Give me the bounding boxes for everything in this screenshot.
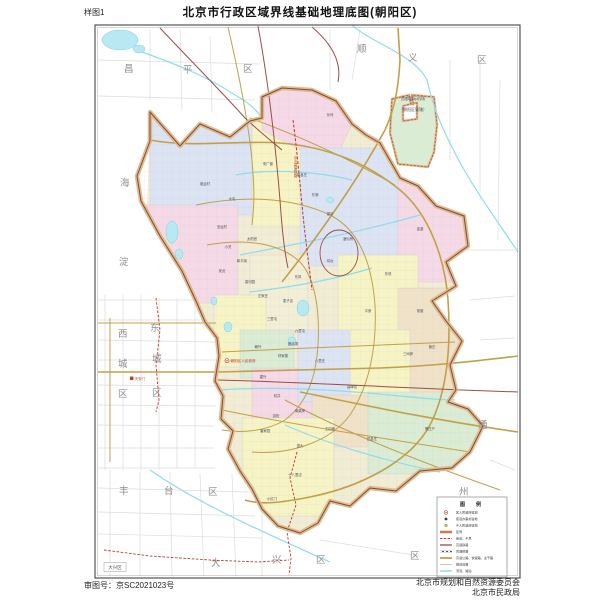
neighbor-district-label: 平 bbox=[183, 65, 193, 76]
subdistrict-label: 黑庄户 bbox=[425, 426, 435, 431]
subdistrict-label: 六里屯 bbox=[295, 328, 306, 333]
map-canvas: 昌平区顺义区海淀西城区东城区丰台区大兴区通州区 奥运村大屯亚运村小关安贞和平街来… bbox=[0, 0, 600, 600]
enclave-label-line2: （朝阳区管辖） bbox=[399, 106, 427, 112]
subdistrict-label: 香河园 bbox=[245, 279, 256, 284]
neighbor-district-label: 大 bbox=[211, 557, 221, 569]
credits: 北京市规划和自然资源委员会 北京市民政局 bbox=[416, 578, 520, 597]
neighbor-district-label: 州 bbox=[459, 487, 469, 498]
subdistrict-label: 管庄 bbox=[429, 344, 436, 349]
page: 样图1 北京市行政区域界线基础地理底图(朝阳区) bbox=[0, 0, 600, 600]
legend: 图 例 区人民政府驻地街道办事处驻地乡人民政府驻地区界街道、乡界高速铁路普通铁路… bbox=[437, 497, 507, 577]
subdistrict-label: 和平街 bbox=[237, 258, 248, 263]
legend-label: 普通铁路 bbox=[456, 549, 468, 554]
legend-label: 高速铁路 bbox=[456, 542, 468, 547]
subdistrict-label: 朝外 bbox=[255, 344, 262, 349]
neighbor-district-label: 顺 bbox=[357, 44, 367, 55]
neighbor-district-label: 台 bbox=[164, 485, 174, 497]
rail-line-label: 京沈高速铁路 bbox=[293, 155, 298, 178]
subdistrict-label: 建外 bbox=[260, 374, 267, 379]
legend-label: 规划道路 bbox=[456, 562, 468, 567]
credit-line-2: 北京市民政局 bbox=[416, 588, 520, 598]
subdistrict-label: 崔各庄 bbox=[297, 172, 308, 177]
legend-symbol-subdistrict-seat bbox=[445, 518, 448, 521]
neighbor-district-label: 城 bbox=[118, 359, 128, 370]
legend-label: 高速公路、快速路、主干路 bbox=[456, 555, 493, 560]
subdistrict-label: 潘家园 bbox=[260, 428, 271, 433]
legend-label: 河流、湖泊 bbox=[456, 568, 471, 573]
neighbor-district-label: 区 bbox=[477, 55, 487, 66]
legend-row: 区界 bbox=[440, 530, 462, 534]
subdistrict-label: 呼家楼 bbox=[278, 353, 289, 358]
neighbor-district-label: 东 bbox=[150, 322, 160, 334]
subdistrict-label: 团结湖 bbox=[288, 341, 299, 346]
subdistrict-label: 王四营 bbox=[325, 426, 336, 431]
neighbor-district-label: 义 bbox=[408, 53, 418, 64]
subdistrict-label: 安贞 bbox=[219, 268, 226, 273]
neighbor-district-label: 兴 bbox=[272, 555, 282, 566]
subdistrict-label: 双井 bbox=[274, 393, 281, 398]
district-government-seat-dot bbox=[226, 360, 227, 361]
neighbor-district-label: 海 bbox=[120, 177, 130, 189]
subdistrict-label: 东湖 bbox=[312, 192, 319, 197]
legend-symbol-township-seat bbox=[445, 524, 448, 527]
subdistrict-label: 八里庄 bbox=[315, 358, 326, 363]
subdistrict-label: 十八里店 bbox=[288, 472, 302, 477]
subdistrict-label: 大屯 bbox=[229, 196, 236, 201]
subdistrict-label: 太阳宫 bbox=[247, 236, 258, 241]
subdistrict-label: 高碑店 bbox=[347, 384, 358, 389]
neighbor-district-label: 通 bbox=[478, 420, 488, 431]
subdistrict-label: 常营 bbox=[417, 308, 424, 313]
neighbor-district-label: 丰 bbox=[119, 485, 129, 497]
tiananmen-label: 天安门 bbox=[135, 376, 146, 381]
subdistrict-label: 豆各庄 bbox=[367, 436, 378, 441]
subdistrict-label: 孙河 bbox=[327, 112, 334, 117]
neighbor-district-label: 区 bbox=[316, 555, 326, 566]
district-government-label: 朝阳区人民政府 bbox=[231, 358, 257, 363]
legend-label: 街道办事处驻地 bbox=[456, 516, 478, 521]
subdistrict-label: 小红门 bbox=[267, 496, 278, 501]
legend-label: 街道、乡界 bbox=[456, 536, 471, 541]
approval-number: 审图号：京SC2021023号 bbox=[84, 580, 174, 591]
subdistrict-label: 小关 bbox=[225, 244, 232, 249]
subdistrict-label: 麦子店 bbox=[283, 298, 294, 303]
subdistrict-label: 三间房 bbox=[403, 351, 414, 356]
subdistrict-label: 金盏 bbox=[417, 226, 424, 231]
subdistrict-label: 亚运村 bbox=[217, 224, 228, 229]
neighbor-district-label: 昌 bbox=[124, 64, 134, 75]
neighbor-district-label: 区 bbox=[118, 389, 128, 400]
legend-label: 乡人民政府驻地 bbox=[456, 523, 478, 528]
subdistrict-label: 将台 bbox=[327, 258, 334, 263]
legend-title: 图 例 bbox=[460, 501, 484, 508]
subdistrict-label: 望京 bbox=[327, 211, 334, 216]
neighbor-district-label: 淀 bbox=[119, 256, 129, 268]
subdistrict-label: 东风 bbox=[295, 274, 302, 279]
credit-line-1: 北京市规划和自然资源委员会 bbox=[416, 578, 520, 588]
legend-label: 区人民政府驻地 bbox=[456, 510, 478, 515]
neighbor-district-label: 区 bbox=[410, 551, 420, 562]
subdistrict-label: 酒仙桥 bbox=[343, 236, 354, 241]
subdistrict-label: 东坝 bbox=[385, 271, 392, 276]
subdistrict-label: 劲松 bbox=[273, 413, 280, 418]
daxing-label: 大兴区 bbox=[108, 564, 122, 571]
subdistrict-label: 来广营 bbox=[263, 161, 274, 166]
legend-label: 区界 bbox=[456, 530, 462, 534]
neighbor-district-label: 城 bbox=[152, 354, 162, 365]
neighbor-district-label: 区 bbox=[152, 388, 162, 399]
subdistrict-label: 南磨房 bbox=[295, 408, 306, 413]
subdistrict-label: 左家庄 bbox=[258, 293, 269, 298]
subdistrict-label: 平房 bbox=[365, 308, 372, 313]
neighbor-district-label: 区 bbox=[243, 64, 253, 75]
legend-symbol-district-seat-dot bbox=[445, 512, 446, 513]
subdistrict-label: 奥运村 bbox=[200, 181, 211, 186]
township-seat-icon bbox=[412, 103, 414, 105]
neighbor-district-label: 区 bbox=[208, 487, 218, 498]
subdistrict-label: 垡头 bbox=[297, 443, 304, 448]
neighbor-district-label: 西 bbox=[118, 329, 128, 340]
subdistrict-label: 三里屯 bbox=[267, 316, 278, 321]
tiananmen-icon bbox=[130, 377, 133, 380]
enclave-label-line1: 首都国际机场 bbox=[401, 95, 425, 101]
